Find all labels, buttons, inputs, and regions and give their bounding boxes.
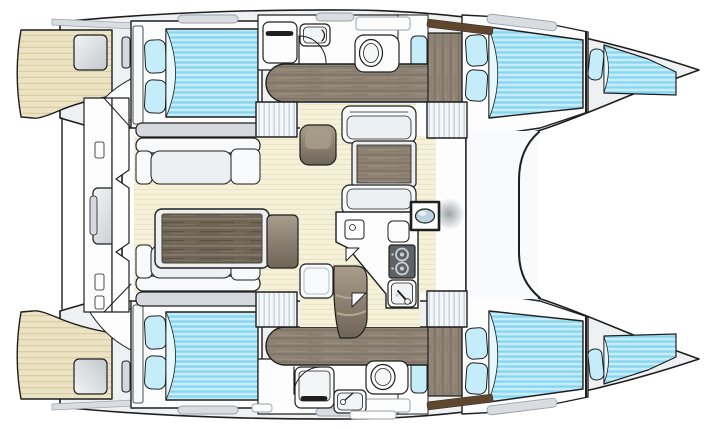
shower-mixer-bar — [303, 396, 325, 401]
counter-module — [388, 221, 409, 242]
cockpit-cleat — [95, 274, 104, 290]
faucet-base — [405, 299, 411, 305]
burner-center — [400, 253, 404, 257]
forward-dinette — [342, 106, 416, 215]
toilet-seat — [364, 44, 379, 63]
cockpit-cleat — [95, 296, 104, 309]
mixer-knob — [323, 396, 328, 401]
mixer-knob — [266, 31, 271, 36]
floorplan-canvas — [0, 0, 720, 429]
stove-cooktop — [389, 245, 415, 278]
mixer-knob — [301, 396, 306, 401]
deck-hatch-small — [350, 411, 396, 419]
foredeck — [466, 131, 538, 299]
dinette-cushion — [347, 116, 411, 139]
toilet-seat — [375, 369, 391, 386]
cockpit-cleat — [95, 142, 104, 158]
salon-table-top — [162, 214, 262, 263]
burner-center — [400, 267, 404, 271]
stool-cushion-highlight — [305, 129, 331, 149]
sink-drain — [395, 293, 398, 296]
dinette-cushion — [347, 189, 411, 209]
cockpit-table-leaf — [90, 196, 97, 235]
salon-aft-wall — [112, 98, 129, 312]
shower-mixer-bar — [268, 31, 291, 36]
dinette-table-top — [357, 145, 411, 183]
salon-end-bench — [267, 215, 298, 268]
salon-ottoman — [300, 264, 333, 298]
deck-hatch-small — [252, 404, 272, 412]
galley-sink-basin — [416, 209, 435, 223]
shower-vanity-unit — [263, 22, 297, 63]
catamaran-floorplan — [0, 0, 720, 429]
mixer-knob — [289, 31, 294, 36]
sink-highlight — [419, 211, 427, 216]
faucet-base — [340, 399, 345, 404]
stove-knob — [391, 267, 393, 269]
stove-knob — [391, 253, 393, 255]
salon-chaise-seat — [334, 266, 367, 338]
